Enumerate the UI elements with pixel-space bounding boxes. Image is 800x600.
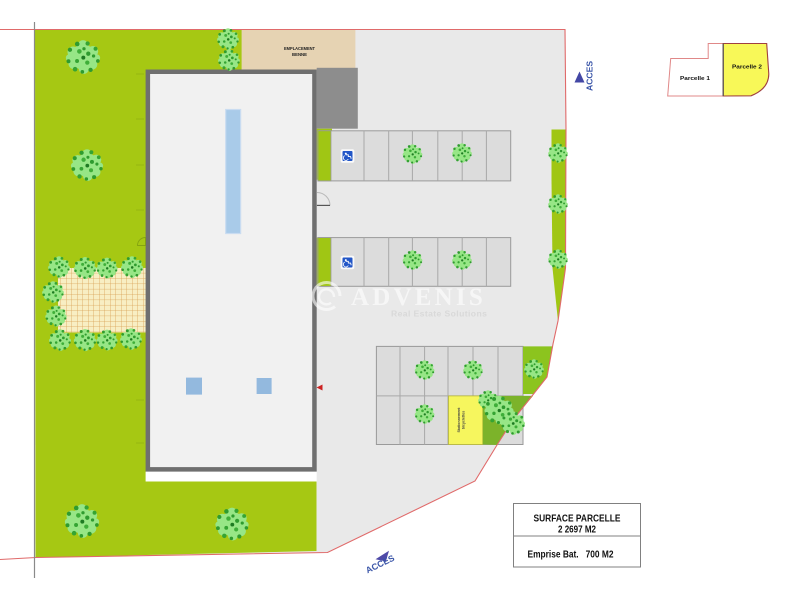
svg-text:ACCES: ACCES	[585, 61, 595, 91]
svg-text:BENNE: BENNE	[292, 52, 308, 58]
svg-text:2 2697 M2: 2 2697 M2	[558, 525, 596, 536]
svg-text:ACCES: ACCES	[364, 553, 396, 576]
svg-text:Real Estate Solutions: Real Estate Solutions	[391, 309, 487, 319]
svg-text:ADVENIS: ADVENIS	[351, 284, 486, 311]
svg-text:Parcelle 2: Parcelle 2	[732, 65, 762, 71]
svg-text:SURFACE PARCELLE: SURFACE PARCELLE	[534, 514, 621, 525]
svg-text:Stationnement: Stationnement	[457, 407, 461, 433]
svg-text:Emprise Bat. 700 M2: Emprise Bat. 700 M2	[528, 550, 614, 561]
svg-text:bicyclettes: bicyclettes	[461, 411, 465, 430]
svg-text:Parcelle 1: Parcelle 1	[680, 76, 710, 82]
svg-text:EMPLACEMENT: EMPLACEMENT	[284, 46, 315, 52]
